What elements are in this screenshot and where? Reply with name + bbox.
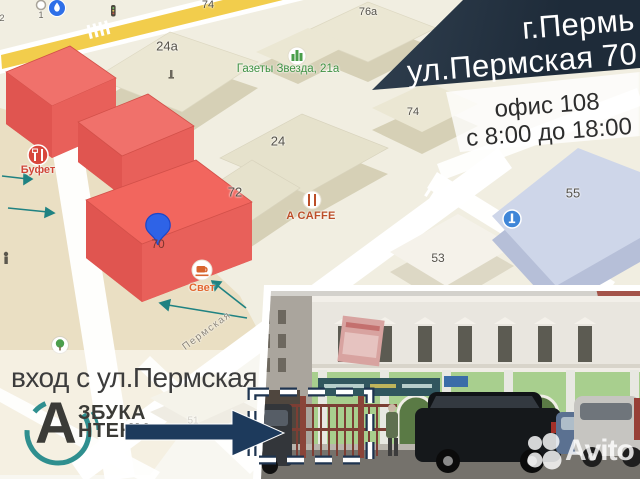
- avito-wordmark: Avito: [565, 434, 634, 468]
- azbuka-antenn-logo: А ЗБУКА НТЕНН: [22, 390, 142, 478]
- pink-banner: [337, 316, 384, 367]
- main-facade: [312, 296, 640, 376]
- avito-watermark: Avito: [526, 432, 634, 470]
- map-label-acaffe: A CAFFE: [286, 210, 335, 222]
- avito-logo-icon: [526, 432, 562, 470]
- map-label-76a: 76а: [359, 6, 377, 18]
- map-marker-1-label: 1: [38, 10, 43, 20]
- map-label-74-top: 74: [202, 0, 214, 11]
- map-label-72: 72: [228, 185, 242, 200]
- logo-letter: А: [35, 395, 77, 453]
- map-label-24a: 24а: [156, 39, 178, 54]
- listing-image: 74 76а 24а Газеты Звезда, 21а 74 24 Буфе…: [0, 0, 640, 479]
- map-label-70: 70: [151, 237, 164, 251]
- street-label-permskaya: Пермская: [181, 309, 234, 352]
- address-plaque: [444, 376, 468, 387]
- map-label-bufet: Буфет: [21, 164, 56, 176]
- car-red-sliver: [634, 398, 640, 440]
- map-marker-2-label: 2: [0, 13, 5, 23]
- shop-sign: [318, 378, 440, 396]
- logo-words: ЗБУКА НТЕНН: [78, 405, 149, 440]
- map-label-55: 55: [566, 186, 580, 201]
- map-label-24: 24: [271, 134, 285, 149]
- map-label-svet: Свет: [189, 282, 215, 294]
- logo-word-bottom: НТЕНН: [78, 423, 149, 441]
- map-label-53: 53: [431, 251, 444, 265]
